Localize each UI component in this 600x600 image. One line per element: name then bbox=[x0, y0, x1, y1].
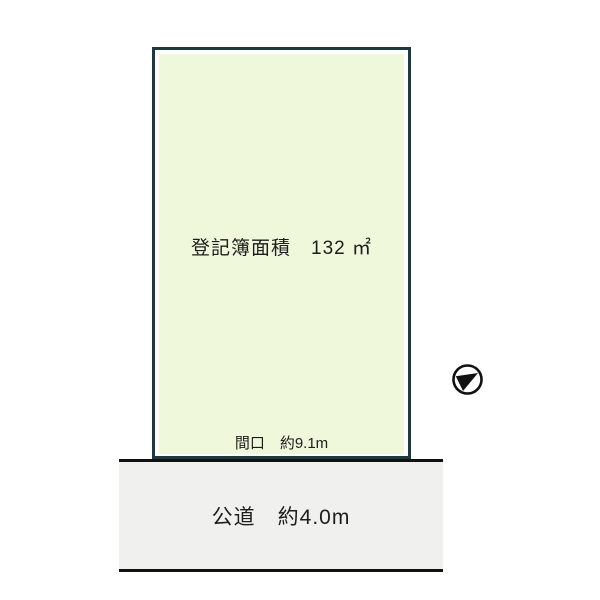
north-arrow-icon bbox=[451, 363, 484, 396]
registered-area-label: 登記簿面積 132 ㎡ bbox=[155, 233, 408, 260]
land-plot: 登記簿面積 132 ㎡ 間口 約9.1m bbox=[152, 47, 411, 459]
road-label: 公道 約4.0m bbox=[212, 501, 351, 531]
land-plot-diagram: 登記簿面積 132 ㎡ 間口 約9.1m 公道 約4.0m bbox=[0, 0, 600, 600]
frontage-label: 間口 約9.1m bbox=[155, 432, 408, 453]
road-band: 公道 約4.0m bbox=[119, 459, 443, 572]
